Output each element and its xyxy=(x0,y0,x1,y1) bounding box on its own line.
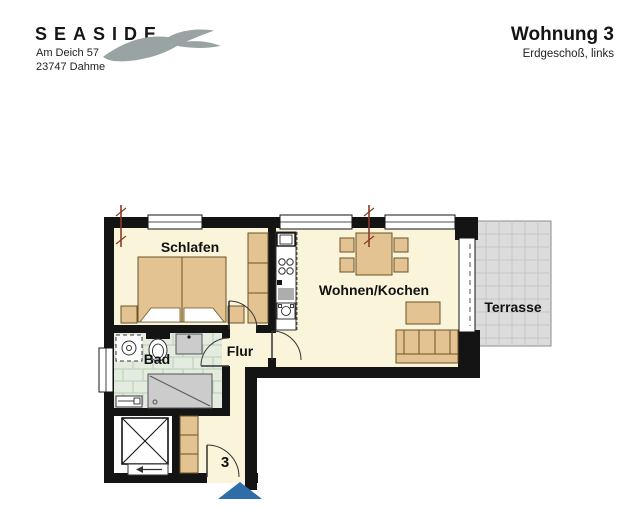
washing-machine-icon xyxy=(116,335,142,361)
kitchen-sink-icon xyxy=(277,233,295,246)
bath-window xyxy=(99,348,113,392)
terrace-area xyxy=(473,221,551,346)
bedroom-window xyxy=(148,215,202,229)
kitchen-window xyxy=(280,215,352,229)
sink-icon xyxy=(176,334,202,354)
living-window xyxy=(385,215,455,229)
bedroom-label: Schlafen xyxy=(161,239,219,255)
nightstand-left xyxy=(121,306,137,323)
dining-table xyxy=(356,233,392,275)
floorplan-drawing: Schlafen Wohnen/Kochen Bad Flur Terrasse… xyxy=(0,0,640,509)
wardrobe xyxy=(248,233,268,323)
nightstand-right xyxy=(228,306,244,323)
kitchen-unit xyxy=(276,232,297,330)
sofa xyxy=(396,330,458,363)
oven-icon xyxy=(277,303,295,319)
entrance-number: 3 xyxy=(221,454,229,471)
chair xyxy=(340,238,354,252)
radiator-icon xyxy=(116,396,142,407)
coffee-table xyxy=(406,302,440,324)
elevator xyxy=(122,418,168,475)
terrace-door xyxy=(459,238,475,332)
kitchen-switch xyxy=(277,280,282,285)
terrace-label: Terrasse xyxy=(484,299,542,315)
living-label: Wohnen/Kochen xyxy=(319,282,429,298)
chair xyxy=(340,258,354,272)
hall-cabinet xyxy=(180,416,198,473)
chair xyxy=(394,238,408,252)
hall-label: Flur xyxy=(227,343,254,359)
chair xyxy=(394,258,408,272)
shower-icon xyxy=(148,374,212,408)
bath-label: Bad xyxy=(144,351,170,367)
floorplan-page: SEASIDE Am Deich 57 23747 Dahme Wohnung … xyxy=(0,0,640,509)
